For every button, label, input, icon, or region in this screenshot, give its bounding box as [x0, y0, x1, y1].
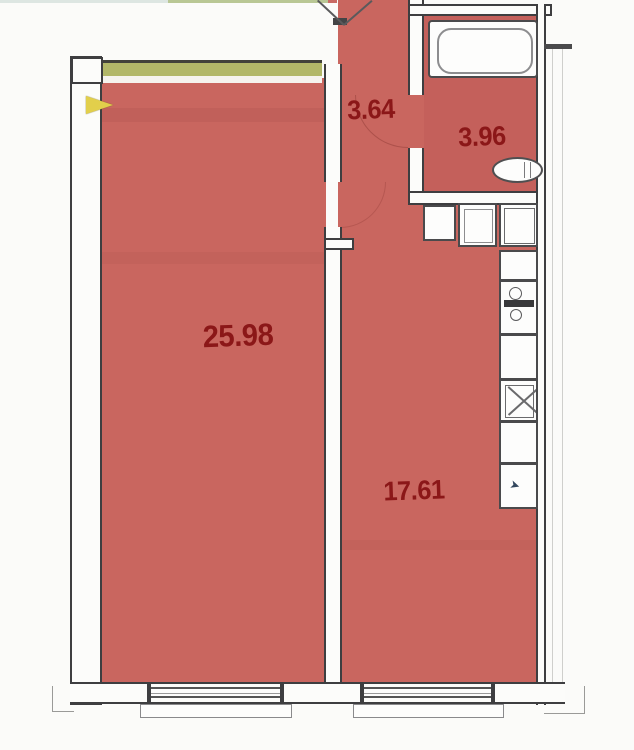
area-label-hallway: 3.64 [347, 94, 396, 127]
bathtub [428, 20, 538, 78]
bathroom-doorway-floor [406, 95, 426, 150]
floor-plan: ➤ 3.64 3.96 25.98 17.61 [0, 0, 634, 750]
shading-band [102, 108, 326, 122]
washbasin [492, 157, 543, 183]
top-edge-artifact-green [168, 0, 330, 3]
shading-band [342, 540, 538, 550]
right-wall-step [544, 44, 572, 49]
sink-unit: ➤ [499, 463, 538, 509]
stove [499, 280, 538, 335]
door-jamb-stub [324, 238, 354, 250]
facade-line [552, 49, 553, 701]
left-wall [70, 56, 102, 705]
bottom-left-step [52, 686, 74, 712]
room-living [102, 78, 326, 682]
shading-band [102, 252, 326, 264]
window-living-jamb [147, 682, 151, 704]
window-living-sill [140, 704, 292, 718]
window-kitchen-glazing [363, 687, 493, 698]
direction-arrow-icon [86, 96, 113, 114]
washing-machine [423, 205, 456, 241]
top-left-corner-block [71, 57, 103, 84]
top-edge-artifact-red [328, 0, 337, 3]
bathroom-top-wall [408, 4, 552, 16]
facade-line [562, 49, 563, 701]
hob [499, 379, 538, 422]
window-living-jamb [280, 682, 284, 704]
window-kitchen-jamb [491, 682, 495, 704]
area-label-living: 25.98 [202, 317, 274, 355]
area-label-bathroom: 3.96 [458, 121, 507, 154]
balcony-strip [75, 60, 322, 76]
window-living-glazing [150, 687, 282, 698]
window-kitchen-jamb [360, 682, 364, 704]
faucet-icon: ➤ [508, 477, 522, 493]
balcony-strip-underline [103, 76, 322, 83]
fridge [499, 203, 538, 247]
top-edge-artifact-left [0, 0, 168, 3]
divider-wall-upper [324, 64, 342, 182]
counter-segment [499, 421, 538, 464]
window-kitchen-sill [353, 704, 504, 718]
bottom-right-step [544, 686, 585, 714]
counter-segment [499, 250, 538, 281]
divider-wall-lower [324, 227, 342, 682]
cabinet-box [458, 203, 497, 247]
area-label-kitchen: 17.61 [383, 474, 445, 507]
counter-segment [499, 334, 538, 380]
